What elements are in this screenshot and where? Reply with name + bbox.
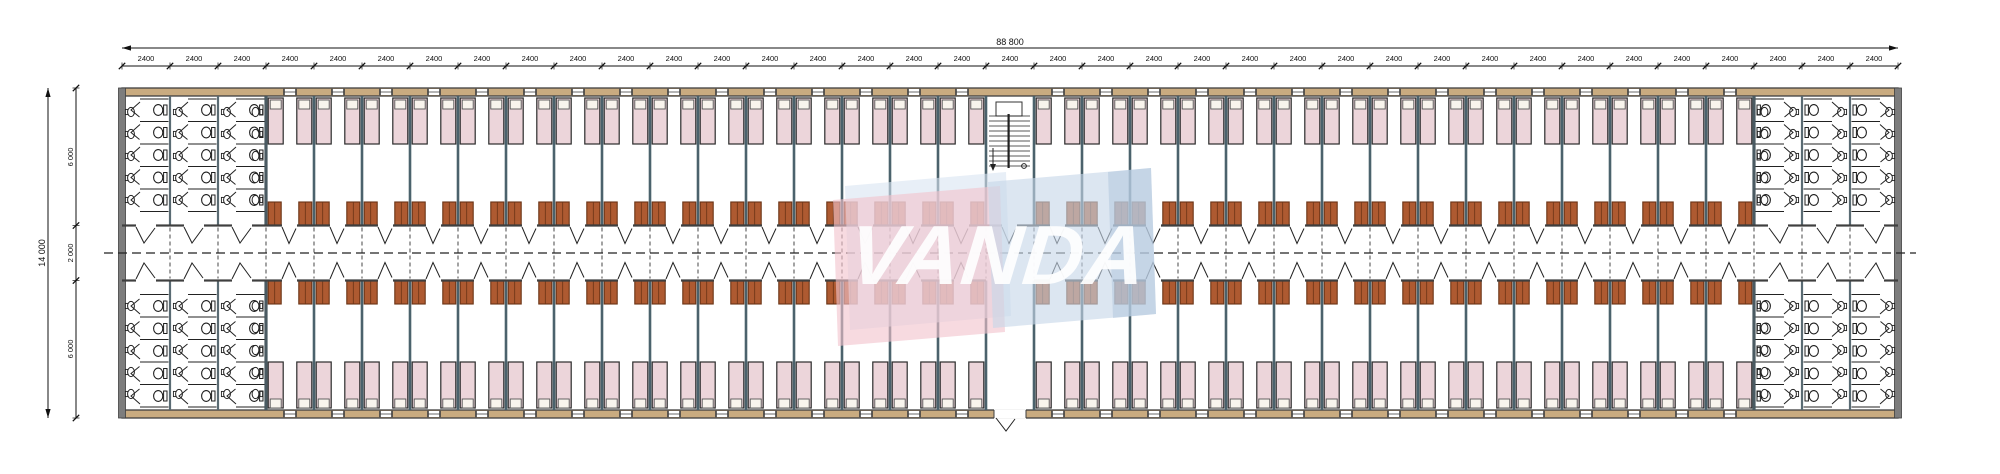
bed-pillow [654, 100, 665, 109]
bed-pillow [587, 399, 598, 408]
door-swing [1242, 227, 1256, 244]
washbasin-fixture [252, 345, 259, 354]
bed-pillow [894, 399, 905, 408]
toilet-fixture [154, 127, 163, 138]
room-module-bottom [1466, 263, 1514, 418]
partition-wall [1417, 281, 1420, 411]
washbasin-tap [1757, 197, 1760, 202]
window-post [631, 411, 633, 417]
window-post [907, 411, 909, 417]
bed-pillow [702, 100, 713, 109]
door-swing [1482, 227, 1496, 244]
dimension-bay-label: 2400 [1146, 54, 1163, 63]
bed-pillow [1086, 100, 1097, 109]
floor-plan-drawing: 2400240024002400240024002400240024002400… [0, 0, 2000, 474]
partition-wall [1561, 96, 1564, 226]
bed-pillow [1163, 100, 1174, 109]
bed-pillow [798, 100, 809, 109]
window-post [1579, 89, 1581, 95]
bed-pillow [827, 100, 838, 109]
toilet-fixture [202, 323, 211, 334]
toilet-fixture [1809, 127, 1818, 138]
toilet-tank [164, 105, 167, 115]
toilet-tank [164, 324, 167, 334]
window-post [1447, 411, 1449, 417]
toilet-tank [1805, 301, 1808, 311]
window-post [583, 89, 585, 95]
washbasin-fixture [1761, 323, 1768, 332]
bed-pillow [1134, 100, 1145, 109]
door-swing [666, 263, 680, 280]
dim-left-middle-label: 2 000 [66, 244, 75, 263]
door-swing [1578, 227, 1592, 244]
bed-pillow [462, 100, 473, 109]
door-swing [232, 263, 251, 279]
bed-pillow [539, 399, 550, 408]
partition-wall [1513, 281, 1516, 411]
washbasin-tap [1757, 175, 1760, 180]
washbasin-tap [1757, 303, 1760, 308]
partition-wall [1609, 96, 1612, 226]
toilet-fixture [1809, 323, 1818, 334]
dimension-bay-label: 2400 [1386, 54, 1403, 63]
toilet-tank [1805, 324, 1808, 334]
room-module-top [746, 89, 794, 244]
toilet-fixture [1809, 368, 1818, 379]
bed-pillow [1355, 399, 1366, 408]
toilet-fixture [154, 301, 163, 312]
bed-pillow [1230, 399, 1241, 408]
toilet-tank [1853, 301, 1856, 311]
room-module-top [1610, 89, 1658, 244]
door-swing [474, 263, 488, 280]
toilet-tank [1805, 105, 1808, 115]
toilet-tank [164, 369, 167, 379]
door-swing [1482, 263, 1496, 280]
washbasin-fixture [252, 389, 259, 398]
partition-wall [264, 281, 267, 411]
washbasin-fixture [252, 323, 259, 332]
toilet-fixture [1809, 150, 1818, 161]
bed-pillow [1374, 100, 1385, 109]
bed-pillow [318, 399, 329, 408]
window-post [1303, 411, 1305, 417]
window-post [475, 411, 477, 417]
toilet-fixture [154, 391, 163, 402]
room-module-bottom [1322, 263, 1370, 418]
dim-overall-height-label: 14 000 [37, 239, 47, 267]
toilet-fixture [154, 346, 163, 357]
toilet-fixture [1809, 105, 1818, 116]
bed-pillow [1307, 100, 1318, 109]
bed-pillow [318, 100, 329, 109]
toilet-fixture [154, 105, 163, 116]
window-post [1495, 411, 1497, 417]
partition-wall [1273, 96, 1276, 226]
toilet-fixture [154, 368, 163, 379]
dimension-bay-label: 2400 [1242, 54, 1259, 63]
toilet-tank [164, 391, 167, 401]
window-post [331, 411, 333, 417]
partition-wall [1321, 96, 1324, 226]
partition-wall [1273, 281, 1276, 411]
door-swing [570, 227, 584, 244]
door-swing [426, 227, 440, 244]
bed-pillow [875, 100, 886, 109]
watermark-text: VANDA [844, 208, 1151, 302]
bed-pillow [1278, 100, 1289, 109]
door-swing [1865, 227, 1884, 243]
dim-arrowhead [1889, 45, 1898, 50]
partition-wall [1225, 281, 1228, 411]
bed-pillow [270, 399, 281, 408]
partition-wall [169, 281, 171, 411]
dim-left-top-label: 6 000 [66, 148, 75, 167]
door-swing [1530, 227, 1544, 244]
window-post [1243, 89, 1245, 95]
window-post [439, 89, 441, 95]
partition-wall [1705, 281, 1708, 411]
window-post [763, 89, 765, 95]
floor-plan: 2400240024002400240024002400240024002400… [0, 0, 2000, 474]
bed-pillow [1595, 399, 1606, 408]
door-swing [1674, 227, 1688, 244]
partition-wall [457, 96, 460, 226]
bed-pillow [731, 100, 742, 109]
bed-pillow [798, 399, 809, 408]
room-module-bottom [794, 263, 842, 418]
window-post [1207, 89, 1209, 95]
washbasin-fixture [1761, 389, 1768, 398]
bed-pillow [414, 100, 425, 109]
bed-pillow [1739, 100, 1750, 109]
toilet-fixture [202, 150, 211, 161]
bed-pillow [779, 100, 790, 109]
room-module-bottom [314, 263, 362, 418]
washbasin-tap [1757, 109, 1760, 114]
partition-wall [793, 96, 796, 226]
window-post [1675, 89, 1677, 95]
window-post [1435, 411, 1437, 417]
bed-pillow [1326, 399, 1337, 408]
room-module-bottom [554, 263, 602, 418]
window-post [1591, 89, 1593, 95]
toilet-fixture [1809, 346, 1818, 357]
bed-pillow [1451, 100, 1462, 109]
window-post [391, 411, 393, 417]
partition-wall [361, 281, 364, 411]
toilet-tank [1853, 195, 1856, 205]
toilet-tank [212, 105, 215, 115]
bed-pillow [558, 399, 569, 408]
bed-pillow [1355, 100, 1366, 109]
door-swing [1194, 227, 1208, 244]
window-post [1051, 89, 1053, 95]
room-module-top [1514, 89, 1562, 244]
bed-pillow [606, 100, 617, 109]
dimension-bay-label: 2400 [1338, 54, 1355, 63]
room-module-top [362, 89, 410, 244]
toilet-fixture [1857, 323, 1866, 334]
door-swing [378, 227, 392, 244]
partition-wall [1849, 281, 1851, 411]
toilet-tank [212, 369, 215, 379]
bed-pillow [1374, 399, 1385, 408]
bed-pillow [1710, 100, 1721, 109]
partition-wall [1609, 281, 1612, 411]
partition-wall [313, 281, 316, 411]
window-post [967, 411, 969, 417]
bed-pillow [587, 100, 598, 109]
partition-wall [697, 96, 700, 226]
door-swing [762, 227, 776, 244]
window-post [1147, 89, 1149, 95]
washbasin-tap [260, 175, 263, 180]
room-module-top [602, 89, 650, 244]
partition-wall [1225, 96, 1228, 226]
toilet-tank [164, 346, 167, 356]
window-post [619, 411, 621, 417]
window-post [811, 411, 813, 417]
window-post [1159, 411, 1161, 417]
dimension-bay-label: 2400 [186, 54, 203, 63]
door-swing [1434, 263, 1448, 280]
room-module-top [1706, 89, 1754, 244]
window-post [295, 411, 297, 417]
washbasin-fixture [1761, 195, 1768, 204]
bed-pillow [270, 100, 281, 109]
window-post [955, 411, 957, 417]
toilet-fixture [1857, 368, 1866, 379]
door-swing [1626, 227, 1640, 244]
bed-pillow [299, 399, 310, 408]
toilet-tank [212, 150, 215, 160]
window-post [727, 411, 729, 417]
window-post [1099, 411, 1101, 417]
partition-wall [169, 96, 171, 226]
bed-pillow [510, 100, 521, 109]
toilet-fixture [1809, 195, 1818, 206]
window-post [919, 89, 921, 95]
window-post [283, 411, 285, 417]
door-swing [570, 263, 584, 280]
room-module-top [1466, 89, 1514, 244]
bed-pillow [702, 399, 713, 408]
partition-wall [697, 281, 700, 411]
toilet-tank [1853, 391, 1856, 401]
window-post [1687, 411, 1689, 417]
window-post [1387, 89, 1389, 95]
window-post [859, 89, 861, 95]
bed-pillow [414, 399, 425, 408]
partition-wall [1849, 96, 1851, 226]
bed-pillow [894, 100, 905, 109]
window-post [295, 89, 297, 95]
toilet-fixture [1857, 301, 1866, 312]
bed-pillow [1499, 100, 1510, 109]
bed-pillow [1691, 399, 1702, 408]
toilet-tank [212, 195, 215, 205]
window-post [571, 411, 573, 417]
window-post [1735, 89, 1737, 95]
door-swing [522, 227, 536, 244]
door-swing [282, 263, 296, 280]
room-module-bottom [506, 263, 554, 418]
partition-wall [313, 96, 316, 226]
bed-pillow [1470, 100, 1481, 109]
toilet-tank [1805, 391, 1808, 401]
partition-wall [1369, 281, 1372, 411]
window-post [1483, 89, 1485, 95]
toilet-fixture [1857, 391, 1866, 402]
room-module-top [650, 89, 698, 244]
dimension-bay-label: 2400 [138, 54, 155, 63]
room-module-bottom [650, 263, 698, 418]
toilet-tank [1805, 346, 1808, 356]
partition-wall [1657, 281, 1660, 411]
bathroom-block [122, 263, 266, 407]
partition-wall [553, 281, 556, 411]
toilet-fixture [154, 323, 163, 334]
room-module-top [506, 89, 554, 244]
toilet-tank [1805, 150, 1808, 160]
washbasin-tap [260, 131, 263, 136]
partition-wall [601, 96, 604, 226]
window-post [1399, 411, 1401, 417]
toilet-fixture [1857, 150, 1866, 161]
dimension-bay-label: 2400 [906, 54, 923, 63]
toilet-tank [1805, 369, 1808, 379]
door-swing [330, 227, 344, 244]
window-post [583, 411, 585, 417]
toilet-tank [1853, 105, 1856, 115]
toilet-fixture [202, 195, 211, 206]
toilet-tank [1853, 346, 1856, 356]
bed-pillow [299, 100, 310, 109]
window-post [1723, 89, 1725, 95]
bed-pillow [606, 399, 617, 408]
partition-wall [505, 96, 508, 226]
window-post [1111, 411, 1113, 417]
dimension-bay-label: 2400 [1626, 54, 1643, 63]
toilet-tank [1853, 173, 1856, 183]
room-module-top [1178, 89, 1226, 244]
window-post [667, 411, 669, 417]
partition-wall [409, 281, 412, 411]
partition-wall [505, 281, 508, 411]
door-swing [1865, 263, 1884, 279]
dimension-bay-label: 2400 [282, 54, 299, 63]
window-post [1627, 89, 1629, 95]
bed-pillow [1518, 399, 1529, 408]
bed-pillow [750, 399, 761, 408]
door-swing [1290, 227, 1304, 244]
bed-pillow [1211, 399, 1222, 408]
partition-wall [1801, 96, 1803, 226]
window-post [871, 411, 873, 417]
room-module-top [554, 89, 602, 244]
toilet-fixture [1857, 172, 1866, 183]
washbasin-tap [260, 325, 263, 330]
door-swing [810, 263, 824, 280]
room-module-top [698, 89, 746, 244]
room-module-bottom [1610, 263, 1658, 418]
door-swing [1769, 263, 1788, 279]
room-module-top [1562, 89, 1610, 244]
partition-wall [1705, 96, 1708, 226]
door-swing [474, 227, 488, 244]
bed-pillow [347, 100, 358, 109]
partition-wall [1321, 281, 1324, 411]
bed-pillow [1662, 399, 1673, 408]
toilet-fixture [154, 172, 163, 183]
window-post [1735, 411, 1737, 417]
room-module-top [458, 89, 506, 244]
partition-wall [409, 96, 412, 226]
room-module-bottom [1706, 263, 1754, 418]
window-post [1675, 411, 1677, 417]
window-post [1303, 89, 1305, 95]
toilet-tank [212, 346, 215, 356]
window-post [1195, 411, 1197, 417]
window-post [1291, 89, 1293, 95]
washbasin-tap [260, 109, 263, 114]
dimension-bay-label: 2400 [378, 54, 395, 63]
bed-pillow [875, 399, 886, 408]
window-post [1351, 89, 1353, 95]
door-swing [1194, 263, 1208, 280]
partition-wall [217, 281, 219, 411]
window-post [439, 411, 441, 417]
dimension-bay-label: 2400 [858, 54, 875, 63]
bed-pillow [1182, 100, 1193, 109]
bed-pillow [1643, 399, 1654, 408]
washbasin-tap [1757, 131, 1760, 136]
partition-wall [553, 96, 556, 226]
bed-pillow [347, 399, 358, 408]
toilet-tank [1853, 150, 1856, 160]
dimension-bay-label: 2400 [1194, 54, 1211, 63]
washbasin-tap [260, 303, 263, 308]
bed-pillow [1278, 399, 1289, 408]
dim-overall-width-label: 88 800 [996, 37, 1024, 47]
bed-pillow [443, 399, 454, 408]
window-post [379, 411, 381, 417]
door-swing [1578, 263, 1592, 280]
window-post [523, 89, 525, 95]
window-post [715, 89, 717, 95]
entrance-door-swing [996, 418, 1015, 431]
window-post [679, 411, 681, 417]
door-swing [1530, 263, 1544, 280]
washbasin-fixture [1761, 345, 1768, 354]
door-swing [1817, 227, 1836, 243]
window-post [1531, 89, 1533, 95]
partition-wall [1369, 96, 1372, 226]
toilet-tank [212, 301, 215, 311]
partition-wall [745, 281, 748, 411]
door-swing [136, 263, 155, 279]
room-module-bottom [1514, 263, 1562, 418]
window-post [523, 411, 525, 417]
bed-pillow [683, 100, 694, 109]
bed-pillow [1211, 100, 1222, 109]
door-swing [1434, 227, 1448, 244]
window-post [1099, 89, 1101, 95]
door-swing [184, 227, 203, 243]
washbasin-tap [1757, 153, 1760, 158]
bed-pillow [1643, 100, 1654, 109]
